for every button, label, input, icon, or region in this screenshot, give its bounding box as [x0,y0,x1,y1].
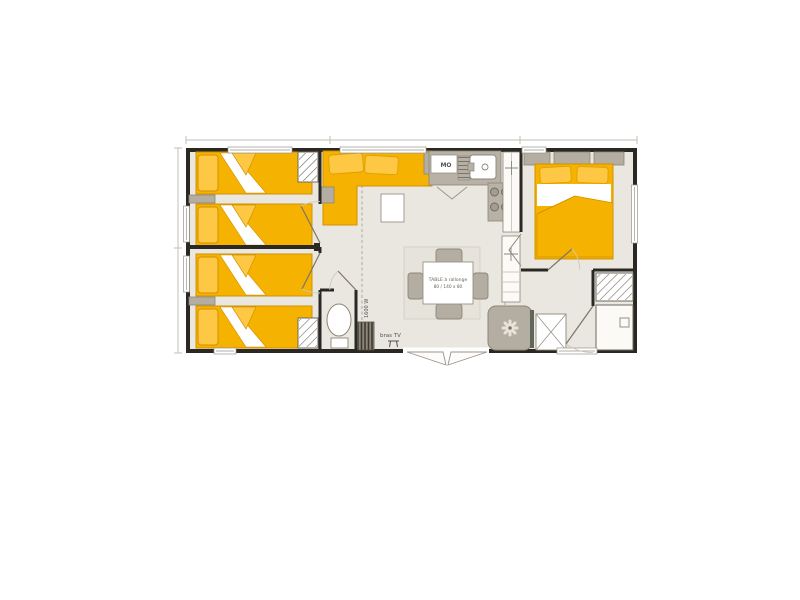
chair [436,304,462,319]
chair [473,273,488,299]
microwave-label: MO [440,162,451,169]
window [522,147,546,153]
pillow [198,257,218,293]
wardrobe-hatch [597,274,632,300]
coffee-table [381,194,404,222]
toilet [327,304,351,336]
heater [358,322,374,350]
window [228,147,292,153]
nightstand [189,297,215,305]
bedroom-double [524,152,624,259]
door-leaf [407,352,446,365]
vanity-side-panel [530,310,534,348]
table-label-line1: TABLE à rallonge [428,276,468,283]
sofa-cushion [365,155,399,175]
dining-table [423,262,473,304]
pillow [198,309,218,345]
table-label-line2: 80 / 140 x 80 [434,284,463,290]
wardrobe-hatch [299,319,317,347]
entrance-double-door [403,348,489,366]
single-bed [196,152,312,194]
heater-label: 1600 W [364,299,370,318]
burner-icon [491,203,499,211]
single-bed [196,254,312,296]
pillow [198,155,218,191]
lower-cabinet [502,236,520,302]
single-bed [196,204,312,246]
toilet-tank [331,338,348,348]
pillow [577,166,609,183]
headboard-storage [554,152,590,165]
vanity-drain-icon [508,326,512,330]
window [632,185,638,243]
window [184,206,190,242]
headboard-storage [594,152,624,165]
headboard-storage [524,152,550,165]
floor-plan-drawing: TABLE à rallonge 80 / 140 x 80 MO [0,0,800,600]
window [184,256,190,292]
double-bed [535,164,613,259]
pillow [198,207,218,243]
window [214,348,236,354]
floor-plan-canvas: TABLE à rallonge 80 / 140 x 80 MO [0,0,800,600]
faucet-icon [468,163,474,171]
window [557,348,597,354]
burner-icon [491,188,499,196]
shower [596,305,633,350]
side-table [321,187,334,203]
tv-bracket-label: bras TV [380,333,401,339]
sofa-cushion [328,153,363,174]
dining-set: TABLE à rallonge 80 / 140 x 80 [404,247,488,319]
tall-unit [503,152,520,232]
single-bed [196,306,312,348]
pillow [540,166,572,184]
chair [408,273,423,299]
wardrobe-hatch [299,153,317,181]
window [340,147,426,153]
nightstand [189,195,215,203]
door-leaf [448,352,487,365]
